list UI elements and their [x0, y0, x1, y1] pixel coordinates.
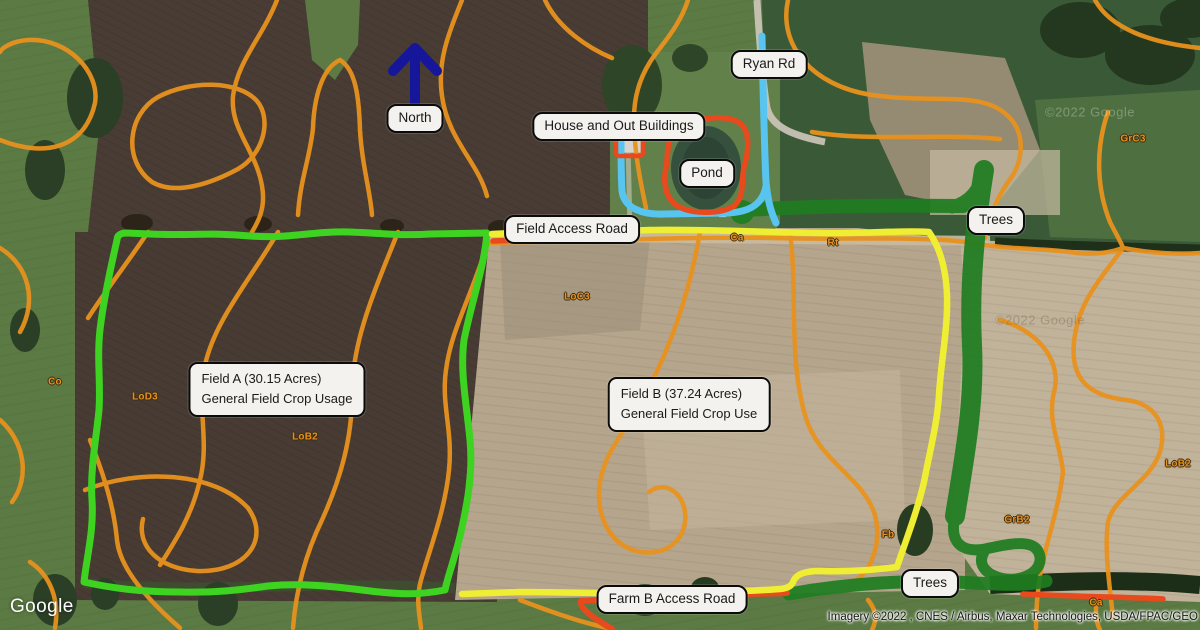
google-logo[interactable]: Google: [10, 596, 74, 618]
map-attribution: Imagery ©2022 , CNES / Airbus, Maxar Tec…: [828, 611, 1198, 623]
label-ryan-rd: Ryan Rd: [731, 50, 808, 79]
label-north: North: [386, 104, 443, 133]
soil-label-grc3: GrC3: [1120, 134, 1145, 145]
soil-label-fb: Fb: [882, 530, 895, 541]
label-trees-southeast: Trees: [901, 569, 959, 598]
field-a-usage: General Field Crop Usage: [201, 389, 352, 409]
field-b-usage: General Field Crop Use: [621, 404, 758, 424]
field-a-title: Field A (30.15 Acres): [201, 369, 352, 389]
soil-label-ca-se: Ca: [1089, 598, 1102, 609]
label-house-outbuildings: House and Out Buildings: [532, 112, 705, 141]
label-pond: Pond: [679, 159, 735, 188]
label-farm-b-access-road: Farm B Access Road: [597, 585, 748, 614]
soil-label-lod3: LoD3: [132, 392, 158, 403]
label-field-access-road: Field Access Road: [504, 215, 640, 244]
soil-label-lob2-a: LoB2: [292, 432, 318, 443]
label-field-a: Field A (30.15 Acres) General Field Crop…: [188, 362, 365, 417]
field-b-title: Field B (37.24 Acres): [621, 384, 758, 404]
satellite-map[interactable]: North Ryan Rd House and Out Buildings Po…: [0, 0, 1200, 630]
imagery-watermark: ©2022 Google: [1045, 105, 1135, 120]
soil-label-grb2: GrB2: [1004, 515, 1029, 526]
soil-label-rt: Rt: [828, 238, 839, 249]
soil-label-loc3: LoC3: [564, 292, 590, 303]
label-field-b: Field B (37.24 Acres) General Field Crop…: [608, 377, 771, 432]
label-trees-northeast: Trees: [967, 206, 1025, 235]
soil-label-ca-mid: Ca: [730, 233, 743, 244]
soil-label-co: Co: [48, 377, 62, 388]
imagery-watermark-2: ©2022 Google: [995, 313, 1085, 328]
soil-label-lob2-b: LoB2: [1165, 459, 1191, 470]
